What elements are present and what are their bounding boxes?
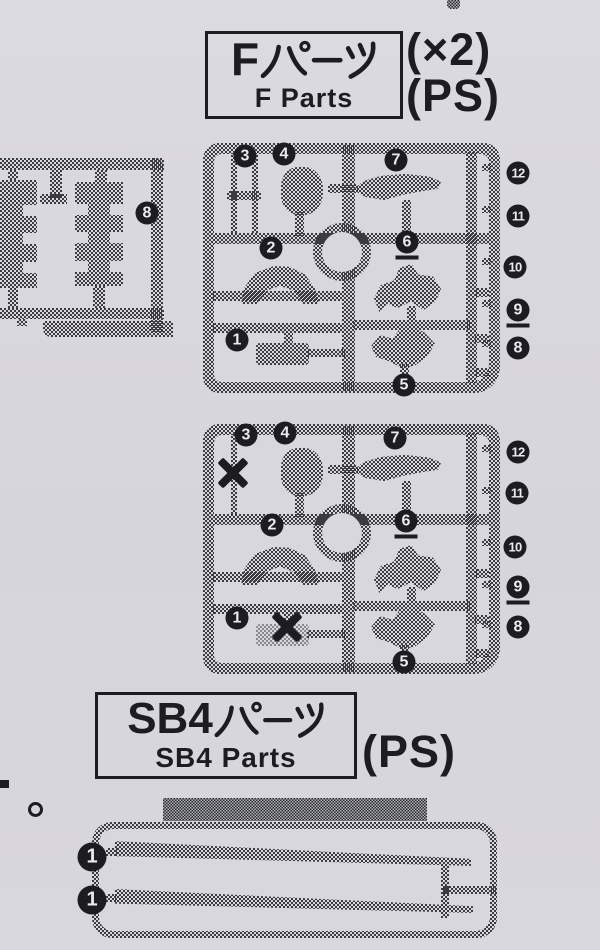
f-parts-material-label: (PS): [406, 73, 500, 119]
part-notch: [110, 261, 123, 272]
sprue-stub: [8, 170, 18, 180]
sb4-runner: [60, 790, 540, 948]
part-4-shape: [281, 448, 323, 496]
sprue-rail-vertical-right: [466, 433, 477, 664]
sprue-stub: [328, 184, 358, 193]
sprue-center-ring-hole: [322, 513, 362, 553]
f-parts-qty-label: (×2): [406, 27, 500, 73]
sprue-top-tab: [163, 798, 427, 821]
part-10-nub: [482, 539, 491, 546]
sprue-stub: [17, 319, 27, 326]
sprue-stub: [106, 848, 117, 856]
part-1-shape: [256, 343, 309, 365]
sprue-frame: [92, 822, 497, 938]
part-notch: [75, 232, 88, 243]
part-notch: [110, 204, 123, 215]
sprue-center-ring: [313, 504, 371, 562]
part-notch: [23, 205, 37, 216]
part-3-strip: [231, 434, 237, 514]
sprue-rail-top: [0, 158, 164, 170]
sprue-stub: [475, 368, 489, 377]
sprue-stub: [92, 874, 99, 881]
sprue-stub: [307, 349, 345, 357]
ladder-part-right: [75, 182, 123, 286]
sprue-center-ring: [313, 223, 371, 281]
part-11-nub: [482, 206, 491, 213]
japanese-period-mark: 。: [28, 802, 43, 817]
part-4-shape: [281, 167, 323, 215]
part-9-nub: [482, 300, 491, 307]
part-9-nub: [482, 581, 491, 588]
part-12-nub: [482, 445, 491, 452]
sprue-stub: [307, 630, 345, 638]
sprue-rail-left-lower: [212, 323, 344, 333]
sprue-rail-left-upper: [212, 572, 344, 582]
part-11-nub: [482, 487, 491, 494]
part-1-shape: [256, 624, 309, 646]
sb4-side-labels: (PS): [362, 729, 456, 775]
sb4-parts-title-latin: SB4: [127, 697, 213, 741]
part-8-nub: [482, 340, 491, 347]
katakana-pa-tsu-glyphs: [259, 39, 377, 80]
sb4-parts-title-jp: SB4 パーツ: [127, 697, 325, 741]
page-edge-fragment: [447, 0, 460, 9]
part-notch: [75, 204, 88, 215]
part-notch: [75, 261, 88, 272]
sprue-stub: [106, 894, 117, 902]
sprue-stub: [40, 194, 67, 204]
sprue-center-ring-hole: [322, 232, 362, 272]
sprue-stub: [295, 212, 304, 236]
f-parts-title-jp: F パーツ: [231, 36, 377, 82]
part-8-nub: [482, 621, 491, 628]
sprue-rail-bottom-frame: [43, 321, 173, 337]
left-partial-runner: [0, 140, 195, 350]
sprue-stub: [8, 288, 18, 308]
page-edge-fragment: [0, 780, 9, 788]
sprue-stub: [95, 170, 107, 182]
sprue-stub: [328, 465, 358, 474]
f-runner-2: [195, 421, 540, 676]
sprue-rail-left-upper: [212, 291, 344, 301]
sprue-stub: [402, 481, 411, 517]
part-notch: [23, 262, 37, 273]
katakana-pa-tsu-glyphs: [213, 700, 325, 739]
manual-page: 。 F パーツ F Parts (×2) (PS): [0, 0, 600, 950]
sprue-stub: [407, 306, 416, 322]
sprue-stub: [475, 288, 489, 297]
japanese-period-text: 。: [31, 805, 32, 806]
f-parts-side-labels: (×2) (PS): [406, 27, 500, 119]
sprue-rail-left-lower: [212, 604, 344, 614]
f-parts-title-en: F Parts: [255, 83, 354, 114]
f-parts-title-latin: F: [231, 36, 259, 82]
sprue-rail-bottom: [0, 308, 164, 319]
f-parts-header-box: F パーツ F Parts: [205, 31, 403, 119]
sprue-stub: [93, 286, 105, 308]
ladder-part-left: [0, 180, 37, 288]
part-10-nub: [482, 258, 491, 265]
f-runner-1: [195, 140, 540, 395]
sprue-stub: [475, 569, 489, 578]
sprue-stub: [295, 493, 304, 517]
sb4-parts-header-box: SB4 パーツ SB4 Parts: [95, 692, 357, 779]
sprue-rail-vertical-right: [466, 152, 477, 383]
sprue-stub: [402, 200, 411, 236]
sb4-parts-title-en: SB4 Parts: [155, 742, 296, 774]
part-12-nub: [482, 164, 491, 171]
part-3-crossbar: [227, 191, 261, 200]
part-notch: [23, 233, 37, 244]
sprue-stub: [407, 587, 416, 603]
part-notch: [110, 232, 123, 243]
sprue-stub: [475, 649, 489, 658]
sprue-rail-right: [151, 158, 163, 332]
sprue-rail-connector-horizontal: [443, 886, 497, 894]
sb4-material-label: (PS): [362, 729, 456, 775]
